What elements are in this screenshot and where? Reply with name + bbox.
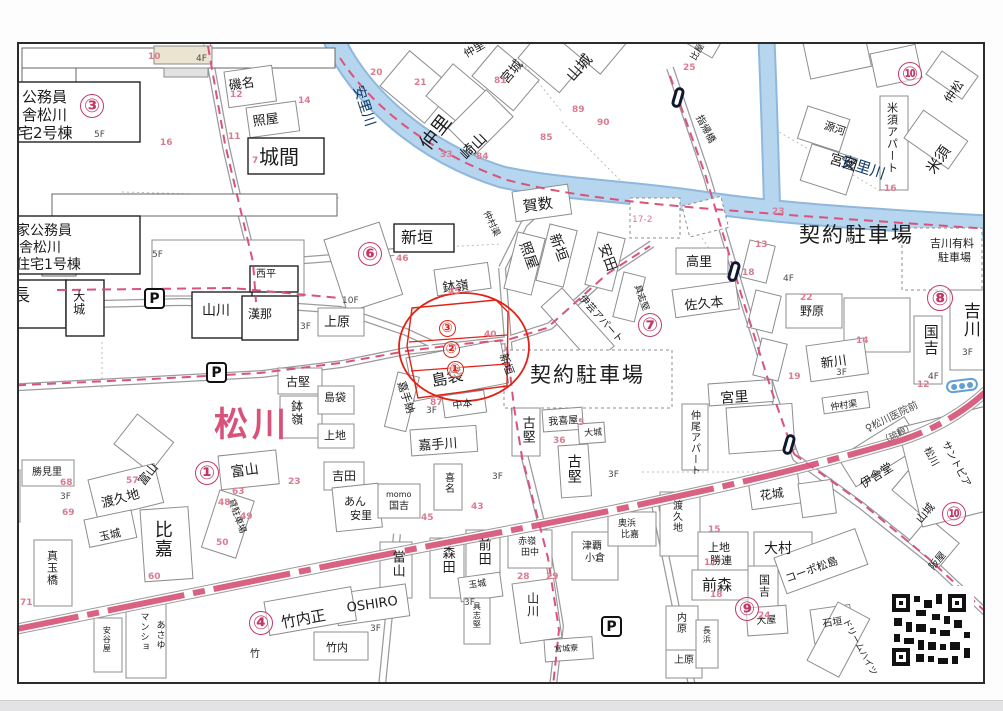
map-label: 嘉手川	[418, 437, 458, 453]
lot-number: 14	[298, 96, 311, 106]
traffic-signal-icon	[945, 377, 978, 394]
map-label: 山川	[202, 304, 230, 319]
map-label: momo	[386, 491, 411, 499]
map-label: 比嘉	[152, 520, 171, 558]
map-label: ドリームハイツ	[840, 618, 878, 678]
bus-stop-icon	[670, 86, 685, 109]
floor-label: 3F	[962, 348, 973, 358]
circled-number: ⑧	[927, 285, 953, 311]
map-label: 中本	[452, 399, 473, 412]
map-label: 仲里	[462, 42, 487, 60]
lot-number: 84	[476, 152, 489, 162]
map-label: 舎松川	[19, 241, 61, 256]
map-label: 渡久地	[100, 488, 141, 511]
lot-number: 46	[396, 254, 409, 264]
map-label: 我喜屋	[548, 416, 579, 429]
map-label: 津覇	[582, 542, 602, 553]
map-frame[interactable]: 公務員舎松川宅2号棟家公務員舎松川住宅1号棟磯名照屋城間仲里仲里崎山宮城山城比屋…	[17, 42, 985, 684]
map-label: 仲尾アパート	[688, 410, 699, 476]
map-label: 安田	[595, 242, 618, 273]
map-label: 嘉手納	[395, 380, 416, 415]
map-label: 宅2号棟	[18, 126, 73, 142]
lot-number: 16	[160, 138, 173, 148]
map-label: 大村	[764, 542, 792, 557]
floor-label: 4F	[783, 274, 794, 284]
lot-number: 28	[517, 572, 530, 582]
map-label: 新垣	[546, 232, 569, 263]
map-label: 国吉	[389, 502, 409, 513]
map-label: 賀数	[522, 196, 554, 216]
bus-stop-icon	[781, 433, 796, 456]
lot-number: 19	[788, 372, 801, 382]
map-label: 比嘉	[621, 531, 639, 540]
map-label: 當山	[390, 550, 404, 578]
lot-number: 12	[230, 90, 243, 100]
map-label: 宮城寮	[554, 644, 579, 654]
map-label: 松川	[214, 408, 290, 444]
map-label: あさゆ	[154, 620, 163, 650]
map-label: 仲村渠	[480, 210, 500, 238]
map-label: 大城	[72, 290, 85, 316]
parking-icon: P	[601, 616, 622, 637]
map-label: 宮里	[720, 390, 749, 407]
map-label: 上原	[324, 316, 350, 330]
map-label: 国吉	[758, 574, 770, 598]
map-label: 山川	[526, 592, 539, 618]
map-label: 安里川	[350, 84, 377, 128]
bus-stop-icon	[726, 260, 741, 283]
map-label: OSHIRO	[346, 595, 399, 616]
map-label: 野原	[800, 305, 824, 318]
map-label: 国吉	[922, 324, 938, 356]
floor-label: 3F	[370, 624, 381, 634]
circled-number: ⑦	[638, 313, 662, 337]
map-label: 駐車場	[938, 252, 971, 264]
lot-number: 36	[553, 436, 566, 446]
map-label: コーポ松島	[784, 555, 840, 585]
map-label: 竹	[250, 650, 260, 661]
map-label: 竹内正	[280, 608, 327, 631]
map-page: 公務員舎松川宅2号棟家公務員舎松川住宅1号棟磯名照屋城間仲里仲里崎山宮城山城比屋…	[0, 0, 1003, 711]
floor-label: 5F	[152, 250, 163, 260]
map-label: 安里	[350, 510, 372, 522]
parking-icon: P	[144, 288, 165, 309]
map-label: 古堅	[566, 454, 581, 484]
lot-number: 18	[742, 268, 755, 278]
floor-label: 5F	[94, 130, 105, 140]
lot-number: 81	[494, 76, 507, 86]
map-label: あん	[344, 496, 366, 508]
map-label: 山城	[914, 501, 937, 525]
parking-icon: P	[206, 362, 227, 383]
map-label: 竹内	[326, 642, 348, 654]
map-label: 長浜	[702, 626, 710, 644]
map-label: 松川	[921, 446, 940, 469]
map-label: 上原	[674, 656, 694, 667]
map-label: 真玉橋	[46, 550, 58, 586]
lot-number: 23	[288, 477, 301, 487]
floor-label: 3F	[836, 368, 847, 378]
lot-number: 23	[772, 207, 785, 217]
lot-number: 15	[708, 525, 721, 535]
map-label: 大城	[584, 429, 603, 440]
floor-label: 10F	[342, 296, 359, 306]
map-label: 鉢嶺	[290, 400, 303, 426]
map-label: 吉川	[960, 302, 978, 338]
lot-number: 40	[484, 330, 497, 340]
floor-label: 3F	[492, 472, 503, 482]
floor-label: 3F	[60, 492, 71, 502]
lot-number: 85	[540, 133, 553, 143]
floor-label: 3F	[426, 406, 437, 416]
lot-number: 43	[471, 502, 484, 512]
map-label: 勝見里	[32, 468, 62, 479]
lot-number: 90	[597, 118, 610, 128]
lot-number: 21	[414, 78, 427, 88]
map-label: 古堅	[286, 376, 310, 389]
map-label: 佐久本	[684, 296, 724, 314]
lot-number: 57	[126, 476, 139, 486]
lot-number: 49	[240, 512, 253, 522]
map-label: 漢那	[248, 308, 272, 321]
map-label: 17-2	[632, 216, 652, 225]
map-label: 山城	[564, 52, 596, 85]
map-label: 米須	[924, 143, 954, 177]
map-label: サントピア	[939, 440, 972, 489]
map-label: 阪屋	[928, 551, 949, 573]
circled-number: ⑨	[735, 597, 759, 621]
lot-number: 48	[218, 498, 231, 508]
map-label: 照屋	[252, 112, 280, 129]
circled-number: ③	[80, 94, 104, 118]
map-label: 富山	[136, 461, 161, 488]
map-label: 富山	[230, 462, 260, 480]
lot-number: 68	[60, 478, 73, 488]
floor-label: 4F	[928, 372, 939, 382]
map-canvas: 公務員舎松川宅2号棟家公務員舎松川住宅1号棟磯名照屋城間仲里仲里崎山宮城山城比屋…	[17, 42, 985, 684]
map-label: 契約駐車場	[530, 364, 645, 386]
lot-number: 63	[232, 487, 245, 497]
floor-label: 3F	[464, 598, 475, 608]
map-label: 吉川有料	[930, 238, 974, 250]
lot-number: 71	[20, 598, 33, 608]
map-label: 花城	[759, 487, 785, 503]
map-label: 古堅	[520, 416, 534, 444]
lot-number: 16	[884, 184, 897, 194]
map-label: 小倉	[585, 554, 605, 565]
circled-number: ③	[439, 320, 456, 337]
lot-number: 13	[755, 240, 768, 250]
floor-label: 4F	[196, 54, 207, 64]
map-label: 照屋	[516, 240, 539, 271]
map-label: 内原	[674, 612, 685, 634]
map-label: 源河	[822, 120, 846, 138]
map-label: 仲里	[417, 112, 456, 154]
map-label: 安谷屋	[102, 626, 110, 653]
map-label: 指帰橋	[693, 114, 716, 145]
map-label: 高里	[686, 256, 712, 270]
map-label: マンショ	[138, 612, 147, 652]
lot-number: 18	[710, 590, 723, 600]
map-label: 舎松川	[22, 108, 67, 124]
map-label: 米須アパート	[886, 102, 898, 174]
map-label: 契約駐車場	[799, 224, 914, 246]
lot-number: 89	[572, 105, 585, 115]
map-label: 吉田	[332, 470, 356, 483]
lot-number: 29	[546, 572, 559, 582]
lot-number: 11	[228, 132, 241, 142]
map-label: 家公務員	[17, 224, 72, 239]
circled-number: ①	[447, 361, 464, 378]
map-label-layer: 公務員舎松川宅2号棟家公務員舎松川住宅1号棟磯名照屋城間仲里仲里崎山宮城山城比屋…	[17, 42, 985, 684]
map-label: 具志堅	[631, 284, 649, 313]
page-bottom-strip	[0, 700, 1003, 711]
floor-label: 3F	[300, 322, 311, 332]
map-label: 公務員	[22, 90, 67, 106]
map-label: 喜名	[442, 472, 453, 494]
lot-number: 17	[704, 558, 717, 568]
floor-label: 3F	[608, 470, 619, 480]
circled-number: ②	[443, 341, 460, 358]
map-label: 城間	[259, 147, 299, 168]
map-label: 頴長	[17, 288, 30, 306]
lot-number: 25	[683, 63, 696, 73]
lot-number: 60	[148, 572, 161, 582]
map-label: 新垣	[497, 352, 515, 377]
map-label: 田中	[521, 549, 539, 558]
lot-number: 45	[448, 287, 461, 297]
lot-number: 10	[148, 52, 161, 62]
lot-number: 14	[856, 336, 869, 346]
circled-number: ⑩	[942, 502, 966, 526]
map-label: 奥浜	[618, 520, 636, 529]
map-label: 伊芸アパート	[576, 294, 624, 345]
map-label: 玉城	[98, 527, 122, 543]
circled-number: ⑥	[358, 242, 382, 266]
map-label: 仲村渠	[830, 400, 858, 413]
lot-number: 69	[62, 508, 75, 518]
circled-number: ①	[195, 461, 219, 485]
map-label: 上地	[708, 542, 730, 554]
lot-number: 5	[578, 418, 584, 428]
lot-number: 20	[370, 68, 383, 78]
map-label: 住宅1号棟	[17, 258, 81, 273]
map-label: 仲松	[942, 78, 966, 105]
lot-number: 50	[216, 538, 229, 548]
circled-number: ⑩	[898, 62, 922, 86]
lot-number: 7	[252, 156, 258, 166]
map-label: 伊舎堂	[858, 461, 895, 491]
map-label: 赤嶺	[518, 538, 536, 547]
lot-number: 45	[421, 513, 434, 523]
map-label: 渡久地	[670, 500, 681, 533]
map-label: 玉城	[468, 579, 487, 591]
map-label: 西平	[256, 270, 276, 281]
map-label: 上地	[324, 430, 346, 442]
circled-number: ④	[249, 611, 273, 635]
lot-number: 24	[758, 611, 771, 621]
map-label: 前田	[476, 538, 490, 566]
map-label: 比屋根	[690, 42, 712, 63]
lot-number: 22	[800, 293, 813, 303]
lot-number: 33	[440, 150, 453, 160]
map-label: 新垣	[401, 230, 433, 247]
map-label: 島袋	[324, 392, 346, 404]
map-label: 森田	[440, 546, 454, 574]
